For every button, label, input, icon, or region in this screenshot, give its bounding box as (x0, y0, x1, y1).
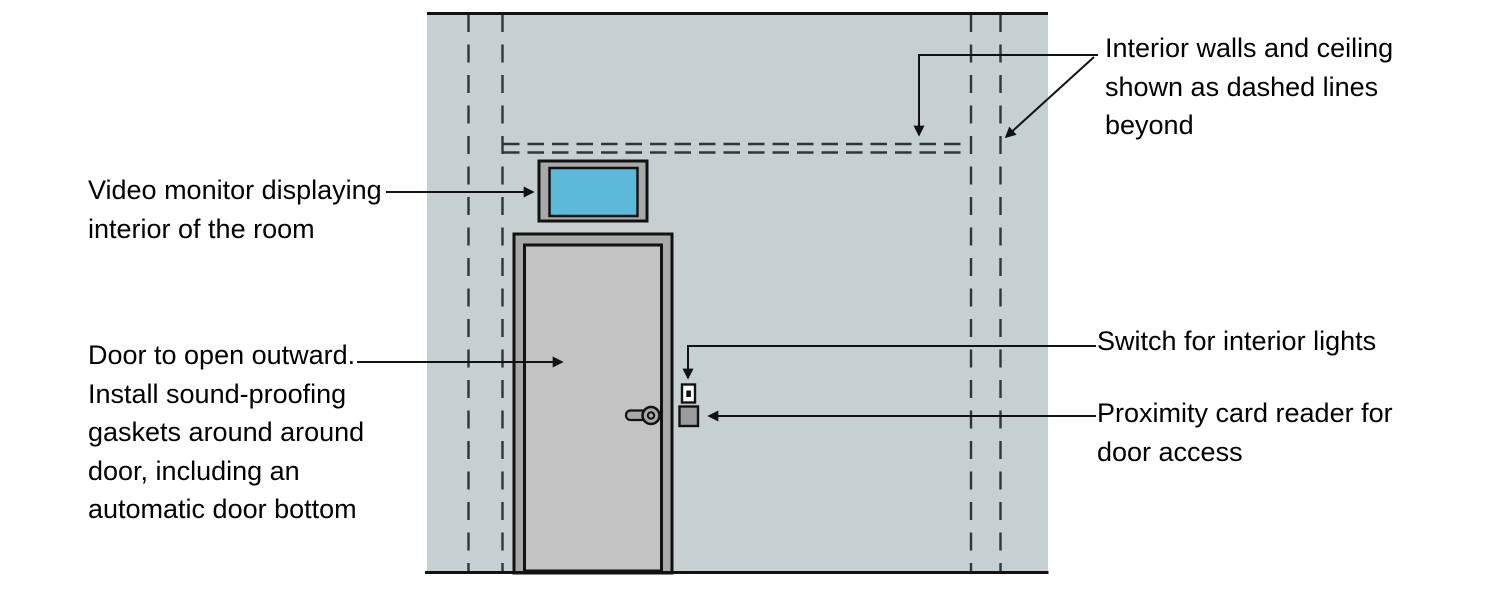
door-handle-rose (643, 407, 660, 424)
video-monitor-screen (550, 168, 638, 216)
proximity-card-reader (680, 407, 699, 427)
light-switch (682, 385, 695, 403)
door-leaf (525, 245, 662, 571)
light-switch-toggle (686, 391, 691, 398)
door-label: Door to open outward. Install sound-proo… (88, 336, 364, 529)
room-elevation-diagram: Interior walls and ceiling shown as dash… (0, 0, 1500, 595)
light-switch-label: Switch for interior lights (1097, 322, 1376, 361)
card-reader-label: Proximity card reader for door access (1097, 394, 1393, 471)
interior-walls-label: Interior walls and ceiling shown as dash… (1105, 29, 1393, 145)
video-monitor-label: Video monitor displaying interior of the… (88, 171, 382, 248)
